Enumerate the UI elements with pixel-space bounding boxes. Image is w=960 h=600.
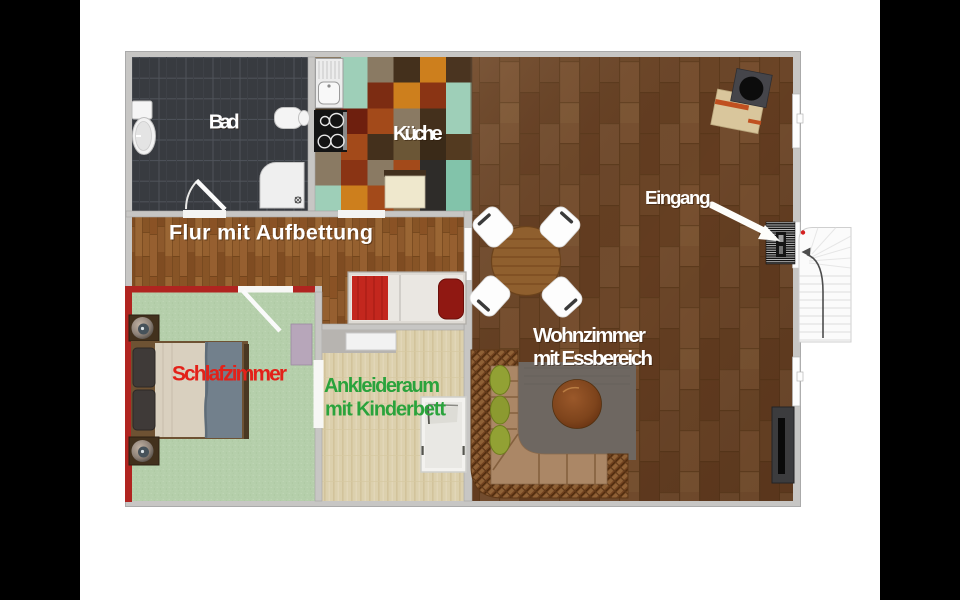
svg-text:Bad: Bad — [209, 111, 240, 134]
svg-text:Ankleideraum: Ankleideraum — [324, 375, 440, 397]
svg-text:mit Essbereich: mit Essbereich — [533, 347, 653, 370]
svg-text:Küche: Küche — [393, 122, 443, 145]
svg-text:Eingang: Eingang — [645, 187, 711, 208]
svg-text:Wohnzimmer: Wohnzimmer — [533, 324, 646, 347]
svg-text:Schlafzimmer: Schlafzimmer — [172, 363, 287, 386]
svg-text:mit Kinderbett: mit Kinderbett — [325, 399, 446, 421]
svg-text:Flur mit Aufbettung: Flur mit Aufbettung — [169, 221, 373, 245]
